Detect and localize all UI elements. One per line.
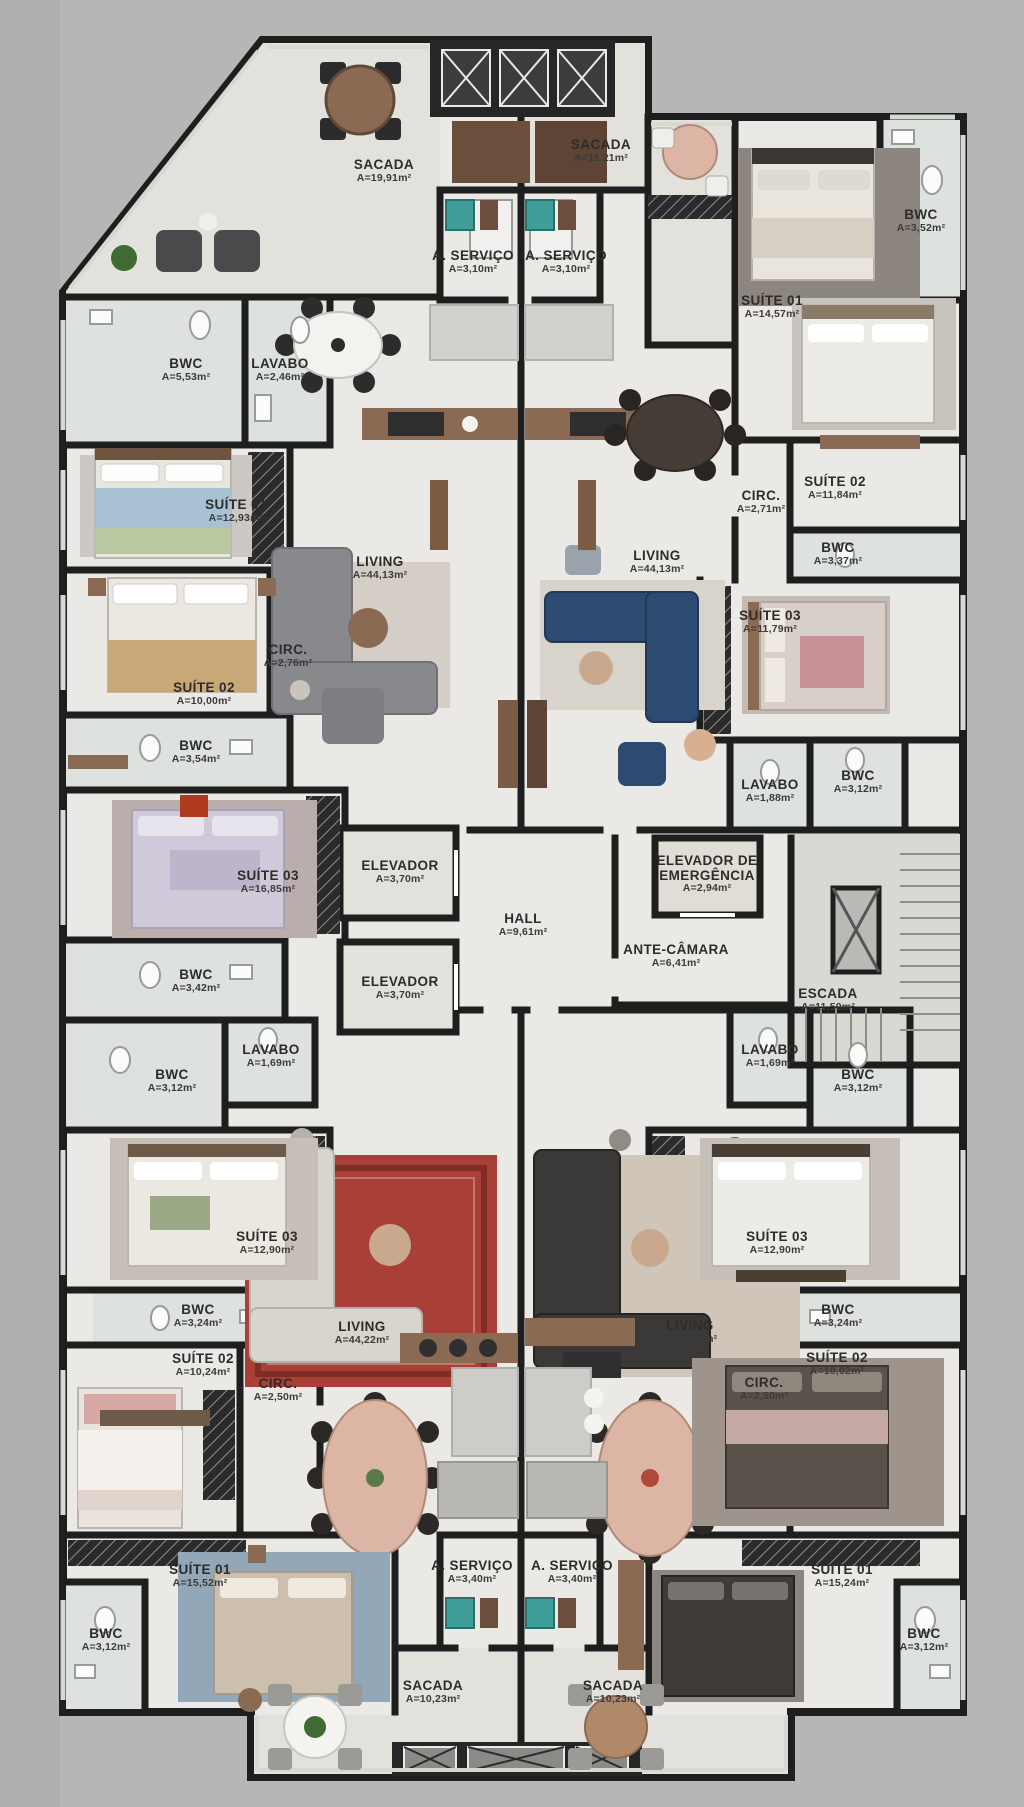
console-upper-left [430,480,448,550]
bed-suite02-upper-left [88,578,276,692]
floor-plan: SACADA A=19,91m² SACADA A=11,21m² A. SER… [0,0,1024,1807]
bed-suite01-upper-right [738,148,920,306]
exterior-strip-left [0,0,60,1807]
bed-suite02-lower-right [692,1358,944,1526]
bed-suite02-upper-right [792,298,956,449]
bed-suite03-upper-left [112,795,317,938]
floorplan-svg [0,0,1024,1807]
dining-table-balcony-tl [320,62,401,140]
dresser-lower-left [100,1410,210,1426]
shelf-left [68,755,128,769]
sofa-upper-left [272,548,450,744]
bed-suite03-lower-left [110,1138,318,1280]
bed-suite03-lower-right [700,1138,900,1282]
console-upper-right [578,480,596,550]
bed-suite02-lower-left [78,1388,182,1528]
bed-suite03-upper-right [742,596,890,714]
sideboard-upper-2 [527,700,547,788]
sideboard-upper [498,700,518,788]
stair-shaft-x [833,888,879,972]
bed-suite01-upper-left [80,448,252,558]
